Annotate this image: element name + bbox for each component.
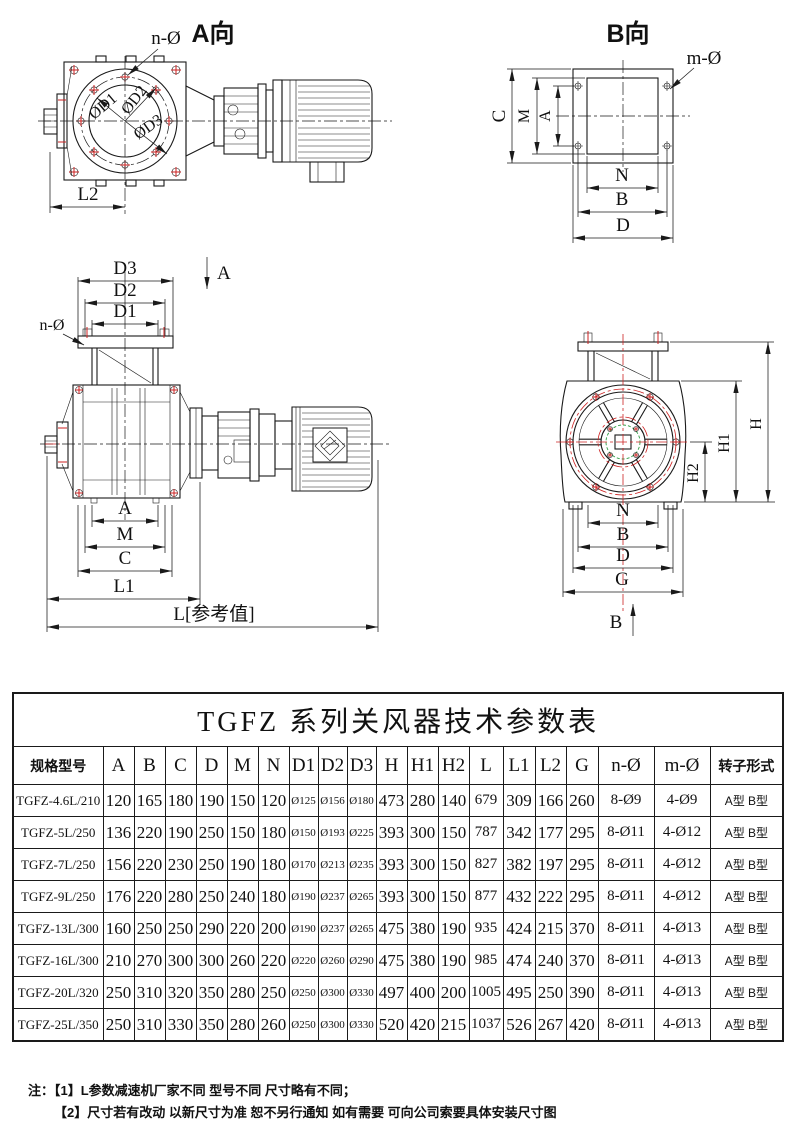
value-cell: 220 — [258, 945, 289, 977]
n-hole-callout: n-Ø — [151, 28, 181, 49]
value-cell: 220 — [134, 817, 165, 849]
value-cell: 4-Ø13 — [654, 945, 710, 977]
value-cell: 150 — [227, 817, 258, 849]
value-cell: 215 — [438, 1009, 469, 1042]
table-row: TGFZ-9L/250176220280250240180Ø190Ø237Ø26… — [13, 881, 783, 913]
column-header: D3 — [347, 747, 376, 785]
value-cell: 877 — [469, 881, 503, 913]
value-cell: 280 — [227, 1009, 258, 1042]
value-cell: Ø265 — [347, 881, 376, 913]
datasheet-page: A向 ØD1 ØD2 ØD3 — [0, 0, 800, 1145]
value-cell: 8-Ø11 — [598, 881, 654, 913]
value-cell: Ø250 — [289, 977, 318, 1009]
value-cell: 280 — [227, 977, 258, 1009]
value-cell: 150 — [438, 849, 469, 881]
value-cell: Ø330 — [347, 977, 376, 1009]
value-cell: 420 — [407, 1009, 438, 1042]
value-cell: 176 — [103, 881, 134, 913]
value-cell: 240 — [535, 945, 566, 977]
value-cell: Ø300 — [318, 977, 347, 1009]
value-cell: Ø237 — [318, 913, 347, 945]
value-cell: A型 B型 — [710, 913, 783, 945]
value-cell: 8-Ø11 — [598, 977, 654, 1009]
value-cell: 350 — [196, 1009, 227, 1042]
value-cell: 393 — [376, 849, 407, 881]
dim-h-label: H — [748, 418, 765, 430]
value-cell: Ø190 — [289, 881, 318, 913]
value-cell: 250 — [103, 977, 134, 1009]
value-cell: Ø193 — [318, 817, 347, 849]
value-cell: 295 — [566, 817, 598, 849]
value-cell: Ø235 — [347, 849, 376, 881]
value-cell: 270 — [134, 945, 165, 977]
dim-n-label: N — [615, 165, 629, 186]
note-1-text: 【1】L参数减速机厂家不同 型号不同 尺寸略有不同； — [54, 1083, 356, 1098]
value-cell: 267 — [535, 1009, 566, 1042]
value-cell: 1037 — [469, 1009, 503, 1042]
value-cell: 180 — [258, 881, 289, 913]
column-header: 规格型号 — [13, 747, 103, 785]
value-cell: Ø213 — [318, 849, 347, 881]
value-cell: 4-Ø13 — [654, 913, 710, 945]
value-cell: 250 — [196, 817, 227, 849]
model-cell: TGFZ-13L/300 — [13, 913, 103, 945]
dim-n-label-side: N — [616, 500, 630, 521]
value-cell: 140 — [438, 785, 469, 817]
table-row: TGFZ-25L/350250310330350280260Ø250Ø300Ø3… — [13, 1009, 783, 1042]
params-table: TGFZ 系列关风器技术参数表 规格型号ABCDMND1D2D3HH1H2LL1… — [12, 692, 784, 1042]
value-cell: 190 — [438, 913, 469, 945]
dim-l2-label: L2 — [77, 184, 98, 205]
front-view-drawing: D3 D2 D1 n-Ø A — [40, 257, 390, 632]
column-header: G — [566, 747, 598, 785]
value-cell: 4-Ø12 — [654, 817, 710, 849]
model-cell: TGFZ-9L/250 — [13, 881, 103, 913]
value-cell: 250 — [196, 849, 227, 881]
value-cell: 215 — [535, 913, 566, 945]
dim-h1-label: H1 — [716, 433, 733, 453]
value-cell: 400 — [407, 977, 438, 1009]
value-cell: 4-Ø9 — [654, 785, 710, 817]
value-cell: A型 B型 — [710, 1009, 783, 1042]
value-cell: 497 — [376, 977, 407, 1009]
value-cell: 190 — [438, 945, 469, 977]
column-header: H — [376, 747, 407, 785]
params-table-body: TGFZ-4.6L/210120165180190150120Ø125Ø156Ø… — [13, 785, 783, 1042]
value-cell: Ø265 — [347, 913, 376, 945]
value-cell: 320 — [165, 977, 196, 1009]
value-cell: A型 B型 — [710, 817, 783, 849]
value-cell: 250 — [103, 1009, 134, 1042]
value-cell: Ø156 — [318, 785, 347, 817]
value-cell: 8-Ø11 — [598, 817, 654, 849]
value-cell: 200 — [438, 977, 469, 1009]
value-cell: 150 — [438, 817, 469, 849]
value-cell: 220 — [134, 881, 165, 913]
column-header: L2 — [535, 747, 566, 785]
value-cell: 165 — [134, 785, 165, 817]
value-cell: Ø330 — [347, 1009, 376, 1042]
value-cell: 935 — [469, 913, 503, 945]
value-cell: 150 — [438, 881, 469, 913]
notes: 注：【1】L参数减速机厂家不同 型号不同 尺寸略有不同； 【2】尺寸若有改动 以… — [28, 1080, 557, 1124]
m-hole-callout: m-Ø — [687, 48, 722, 69]
value-cell: Ø250 — [289, 1009, 318, 1042]
value-cell: 250 — [134, 913, 165, 945]
dim-b-label-side: B — [617, 524, 630, 545]
column-header: 转子形式 — [710, 747, 783, 785]
column-header: H2 — [438, 747, 469, 785]
table-row: TGFZ-13L/300160250250290220200Ø190Ø237Ø2… — [13, 913, 783, 945]
value-cell: 4-Ø12 — [654, 849, 710, 881]
value-cell: 985 — [469, 945, 503, 977]
value-cell: Ø190 — [289, 913, 318, 945]
technical-drawings: A向 ØD1 ØD2 ØD3 — [0, 0, 800, 670]
view-b-drawing: B向 C M A N B D m-Ø — [489, 19, 721, 243]
value-cell: 310 — [134, 1009, 165, 1042]
side-view-drawing: H2 H1 H N B D G B — [556, 331, 775, 636]
dim-m-label-front: M — [117, 524, 134, 545]
value-cell: 300 — [407, 849, 438, 881]
value-cell: 260 — [227, 945, 258, 977]
value-cell: 520 — [376, 1009, 407, 1042]
column-header: C — [165, 747, 196, 785]
table-row: TGFZ-20L/320250310320350280250Ø250Ø300Ø3… — [13, 977, 783, 1009]
column-header: M — [227, 747, 258, 785]
note-label: 注： — [28, 1083, 54, 1098]
value-cell: 200 — [258, 913, 289, 945]
dim-c-label: C — [489, 110, 510, 123]
value-cell: A型 B型 — [710, 785, 783, 817]
value-cell: A型 B型 — [710, 881, 783, 913]
value-cell: 120 — [258, 785, 289, 817]
value-cell: 300 — [407, 817, 438, 849]
column-header: L — [469, 747, 503, 785]
dim-d-label: D — [616, 215, 630, 236]
value-cell: A型 B型 — [710, 977, 783, 1009]
model-cell: TGFZ-7L/250 — [13, 849, 103, 881]
table-header-row: 规格型号ABCDMND1D2D3HH1H2LL1L2Gn-Øm-Ø转子形式 — [13, 747, 783, 785]
table-row: TGFZ-16L/300210270300300260220Ø220Ø260Ø2… — [13, 945, 783, 977]
column-header: A — [103, 747, 134, 785]
value-cell: 475 — [376, 913, 407, 945]
model-cell: TGFZ-16L/300 — [13, 945, 103, 977]
value-cell: Ø237 — [318, 881, 347, 913]
dim-a-label: A — [537, 110, 554, 122]
model-cell: TGFZ-5L/250 — [13, 817, 103, 849]
value-cell: 197 — [535, 849, 566, 881]
value-cell: Ø125 — [289, 785, 318, 817]
value-cell: Ø300 — [318, 1009, 347, 1042]
note-line-1: 注：【1】L参数减速机厂家不同 型号不同 尺寸略有不同； — [28, 1080, 557, 1102]
value-cell: 827 — [469, 849, 503, 881]
value-cell: 280 — [165, 881, 196, 913]
value-cell: 787 — [469, 817, 503, 849]
value-cell: 4-Ø12 — [654, 881, 710, 913]
value-cell: Ø260 — [318, 945, 347, 977]
value-cell: 310 — [134, 977, 165, 1009]
value-cell: 8-Ø11 — [598, 913, 654, 945]
value-cell: Ø180 — [347, 785, 376, 817]
view-b-title: B向 — [606, 19, 649, 48]
dim-b-label: B — [616, 189, 629, 210]
value-cell: Ø290 — [347, 945, 376, 977]
value-cell: 150 — [227, 785, 258, 817]
value-cell: 190 — [165, 817, 196, 849]
dia-d2-label: ØD2 — [118, 83, 151, 118]
value-cell: 250 — [165, 913, 196, 945]
housing-corner-bolts — [75, 386, 178, 497]
value-cell: 380 — [407, 945, 438, 977]
value-cell: 120 — [103, 785, 134, 817]
value-cell: 240 — [227, 881, 258, 913]
value-cell: 156 — [103, 849, 134, 881]
table-row: TGFZ-5L/250136220190250150180Ø150Ø193Ø22… — [13, 817, 783, 849]
column-header: m-Ø — [654, 747, 710, 785]
value-cell: 166 — [535, 785, 566, 817]
value-cell: 4-Ø13 — [654, 1009, 710, 1042]
value-cell: 300 — [196, 945, 227, 977]
value-cell: 4-Ø13 — [654, 977, 710, 1009]
value-cell: 8-Ø11 — [598, 849, 654, 881]
value-cell: 8-Ø9 — [598, 785, 654, 817]
value-cell: 393 — [376, 817, 407, 849]
value-cell: 290 — [196, 913, 227, 945]
value-cell: 250 — [258, 977, 289, 1009]
value-cell: 679 — [469, 785, 503, 817]
table-row: TGFZ-4.6L/210120165180190150120Ø125Ø156Ø… — [13, 785, 783, 817]
value-cell: 177 — [535, 817, 566, 849]
value-cell: 300 — [407, 881, 438, 913]
dim-l1-label: L1 — [113, 576, 134, 597]
value-cell: 160 — [103, 913, 134, 945]
view-a-title: A向 — [191, 19, 234, 48]
value-cell: 342 — [503, 817, 535, 849]
model-cell: TGFZ-25L/350 — [13, 1009, 103, 1042]
model-cell: TGFZ-20L/320 — [13, 977, 103, 1009]
value-cell: 382 — [503, 849, 535, 881]
column-header: D1 — [289, 747, 318, 785]
value-cell: A型 B型 — [710, 945, 783, 977]
dim-h2-label: H2 — [685, 463, 702, 483]
value-cell: 295 — [566, 881, 598, 913]
n-hole-callout-front: n-Ø — [40, 317, 65, 334]
model-cell: TGFZ-4.6L/210 — [13, 785, 103, 817]
section-b-mark: B — [610, 612, 623, 633]
column-header: L1 — [503, 747, 535, 785]
value-cell: 180 — [258, 849, 289, 881]
value-cell: Ø220 — [289, 945, 318, 977]
value-cell: 250 — [196, 881, 227, 913]
column-header: D2 — [318, 747, 347, 785]
value-cell: 309 — [503, 785, 535, 817]
column-header: N — [258, 747, 289, 785]
value-cell: 300 — [165, 945, 196, 977]
value-cell: 370 — [566, 945, 598, 977]
value-cell: 250 — [535, 977, 566, 1009]
dim-g-label: G — [615, 569, 629, 590]
dim-c-label-front: C — [119, 548, 132, 569]
table-title-row: TGFZ 系列关风器技术参数表 — [13, 693, 783, 747]
column-header: n-Ø — [598, 747, 654, 785]
value-cell: Ø170 — [289, 849, 318, 881]
value-cell: 280 — [407, 785, 438, 817]
value-cell: 424 — [503, 913, 535, 945]
dim-m-label: M — [516, 109, 533, 123]
dim-l-label: L[参考值] — [173, 603, 254, 625]
value-cell: 190 — [227, 849, 258, 881]
value-cell: 136 — [103, 817, 134, 849]
value-cell: 393 — [376, 881, 407, 913]
value-cell: 295 — [566, 849, 598, 881]
value-cell: Ø150 — [289, 817, 318, 849]
value-cell: 475 — [376, 945, 407, 977]
dia-d1-label: ØD1 — [86, 90, 121, 123]
dim-a-label-front: A — [118, 498, 132, 519]
value-cell: 420 — [566, 1009, 598, 1042]
note-line-2: 【2】尺寸若有改动 以新尺寸为准 恕不另行通知 如有需要 可向公司索要具体安装尺… — [28, 1102, 557, 1124]
value-cell: 526 — [503, 1009, 535, 1042]
value-cell: 230 — [165, 849, 196, 881]
value-cell: 350 — [196, 977, 227, 1009]
column-header: B — [134, 747, 165, 785]
value-cell: 8-Ø11 — [598, 945, 654, 977]
value-cell: 190 — [196, 785, 227, 817]
value-cell: 260 — [566, 785, 598, 817]
section-a-mark: A — [217, 263, 231, 284]
value-cell: Ø225 — [347, 817, 376, 849]
value-cell: A型 B型 — [710, 849, 783, 881]
value-cell: 495 — [503, 977, 535, 1009]
value-cell: 380 — [407, 913, 438, 945]
value-cell: 1005 — [469, 977, 503, 1009]
value-cell: 220 — [134, 849, 165, 881]
value-cell: 180 — [258, 817, 289, 849]
value-cell: 260 — [258, 1009, 289, 1042]
table-row: TGFZ-7L/250156220230250190180Ø170Ø213Ø23… — [13, 849, 783, 881]
value-cell: 220 — [227, 913, 258, 945]
value-cell: 8-Ø11 — [598, 1009, 654, 1042]
value-cell: 474 — [503, 945, 535, 977]
value-cell: 390 — [566, 977, 598, 1009]
view-a-drawing: A向 ØD1 ØD2 ØD3 — [38, 19, 392, 214]
value-cell: 473 — [376, 785, 407, 817]
value-cell: 210 — [103, 945, 134, 977]
value-cell: 180 — [165, 785, 196, 817]
column-header: D — [196, 747, 227, 785]
value-cell: 222 — [535, 881, 566, 913]
dim-d-label-side: D — [616, 545, 630, 566]
value-cell: 370 — [566, 913, 598, 945]
column-header: H1 — [407, 747, 438, 785]
value-cell: 330 — [165, 1009, 196, 1042]
table-title: TGFZ 系列关风器技术参数表 — [13, 693, 783, 747]
value-cell: 432 — [503, 881, 535, 913]
